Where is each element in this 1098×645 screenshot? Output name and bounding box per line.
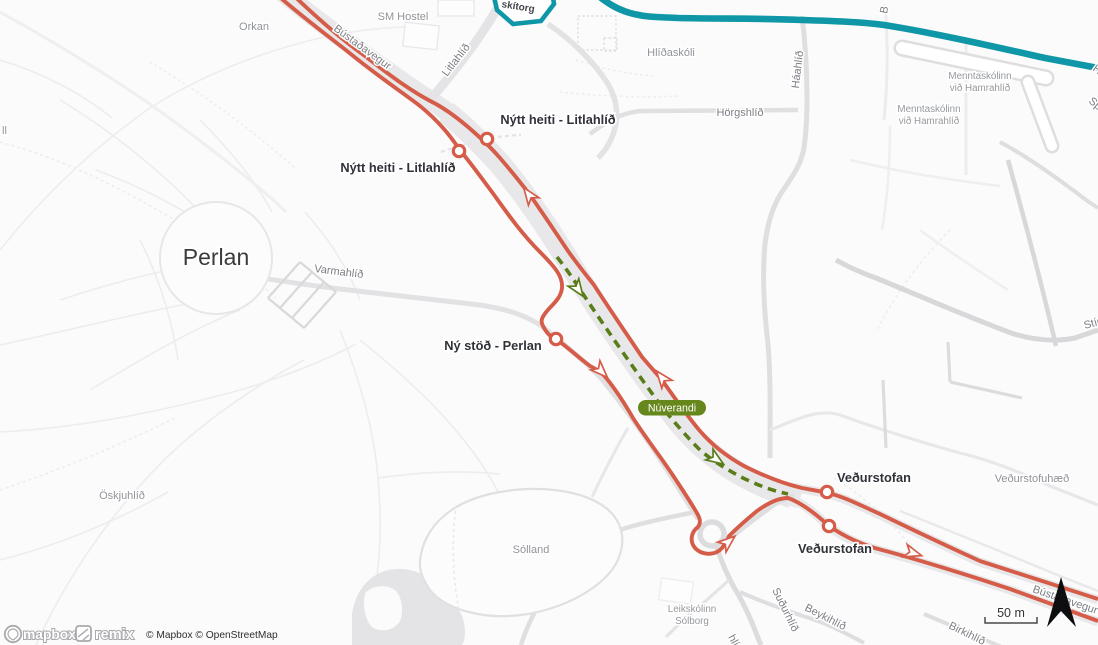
svg-text:Orkan: Orkan xyxy=(239,21,269,33)
svg-text:Sólborg: Sólborg xyxy=(675,616,709,627)
svg-text:SM Hostel: SM Hostel xyxy=(378,11,429,23)
svg-text:Ný stöð - Perlan: Ný stöð - Perlan xyxy=(444,338,542,353)
svg-text:remix: remix xyxy=(95,627,134,643)
svg-text:við Hamrahlíð: við Hamrahlíð xyxy=(899,116,960,127)
svg-text:Menntaskólinn: Menntaskólinn xyxy=(897,104,960,115)
svg-text:Menntaskólinn: Menntaskólinn xyxy=(948,71,1011,82)
svg-text:Núverandi: Núverandi xyxy=(648,403,696,415)
svg-text:Veðurstofan: Veðurstofan xyxy=(798,541,872,556)
svg-text:Veðurstofan: Veðurstofan xyxy=(837,470,911,485)
svg-text:© Mapbox © OpenStreetMap: © Mapbox © OpenStreetMap xyxy=(146,630,278,641)
svg-text:ll: ll xyxy=(2,125,7,137)
svg-text:Öskjuhlíð: Öskjuhlíð xyxy=(99,490,145,502)
svg-text:Hörgshlíð: Hörgshlíð xyxy=(716,107,763,119)
svg-text:Perlan: Perlan xyxy=(183,244,249,270)
svg-text:mapbox: mapbox xyxy=(23,627,76,642)
svg-text:Hlíðaskóli: Hlíðaskóli xyxy=(647,47,695,59)
svg-text:Veðurstofuhæð: Veðurstofuhæð xyxy=(995,473,1070,485)
svg-text:við Hamrahlíð: við Hamrahlíð xyxy=(950,83,1011,94)
svg-text:Sólland: Sólland xyxy=(513,544,550,556)
svg-text:Leikskólinn: Leikskólinn xyxy=(668,604,716,615)
svg-text:Nýtt heiti - Litlahlíð: Nýtt heiti - Litlahlíð xyxy=(340,160,455,175)
svg-text:Nýtt heiti - Litlahlíð: Nýtt heiti - Litlahlíð xyxy=(500,112,615,127)
svg-text:50 m: 50 m xyxy=(997,606,1025,620)
